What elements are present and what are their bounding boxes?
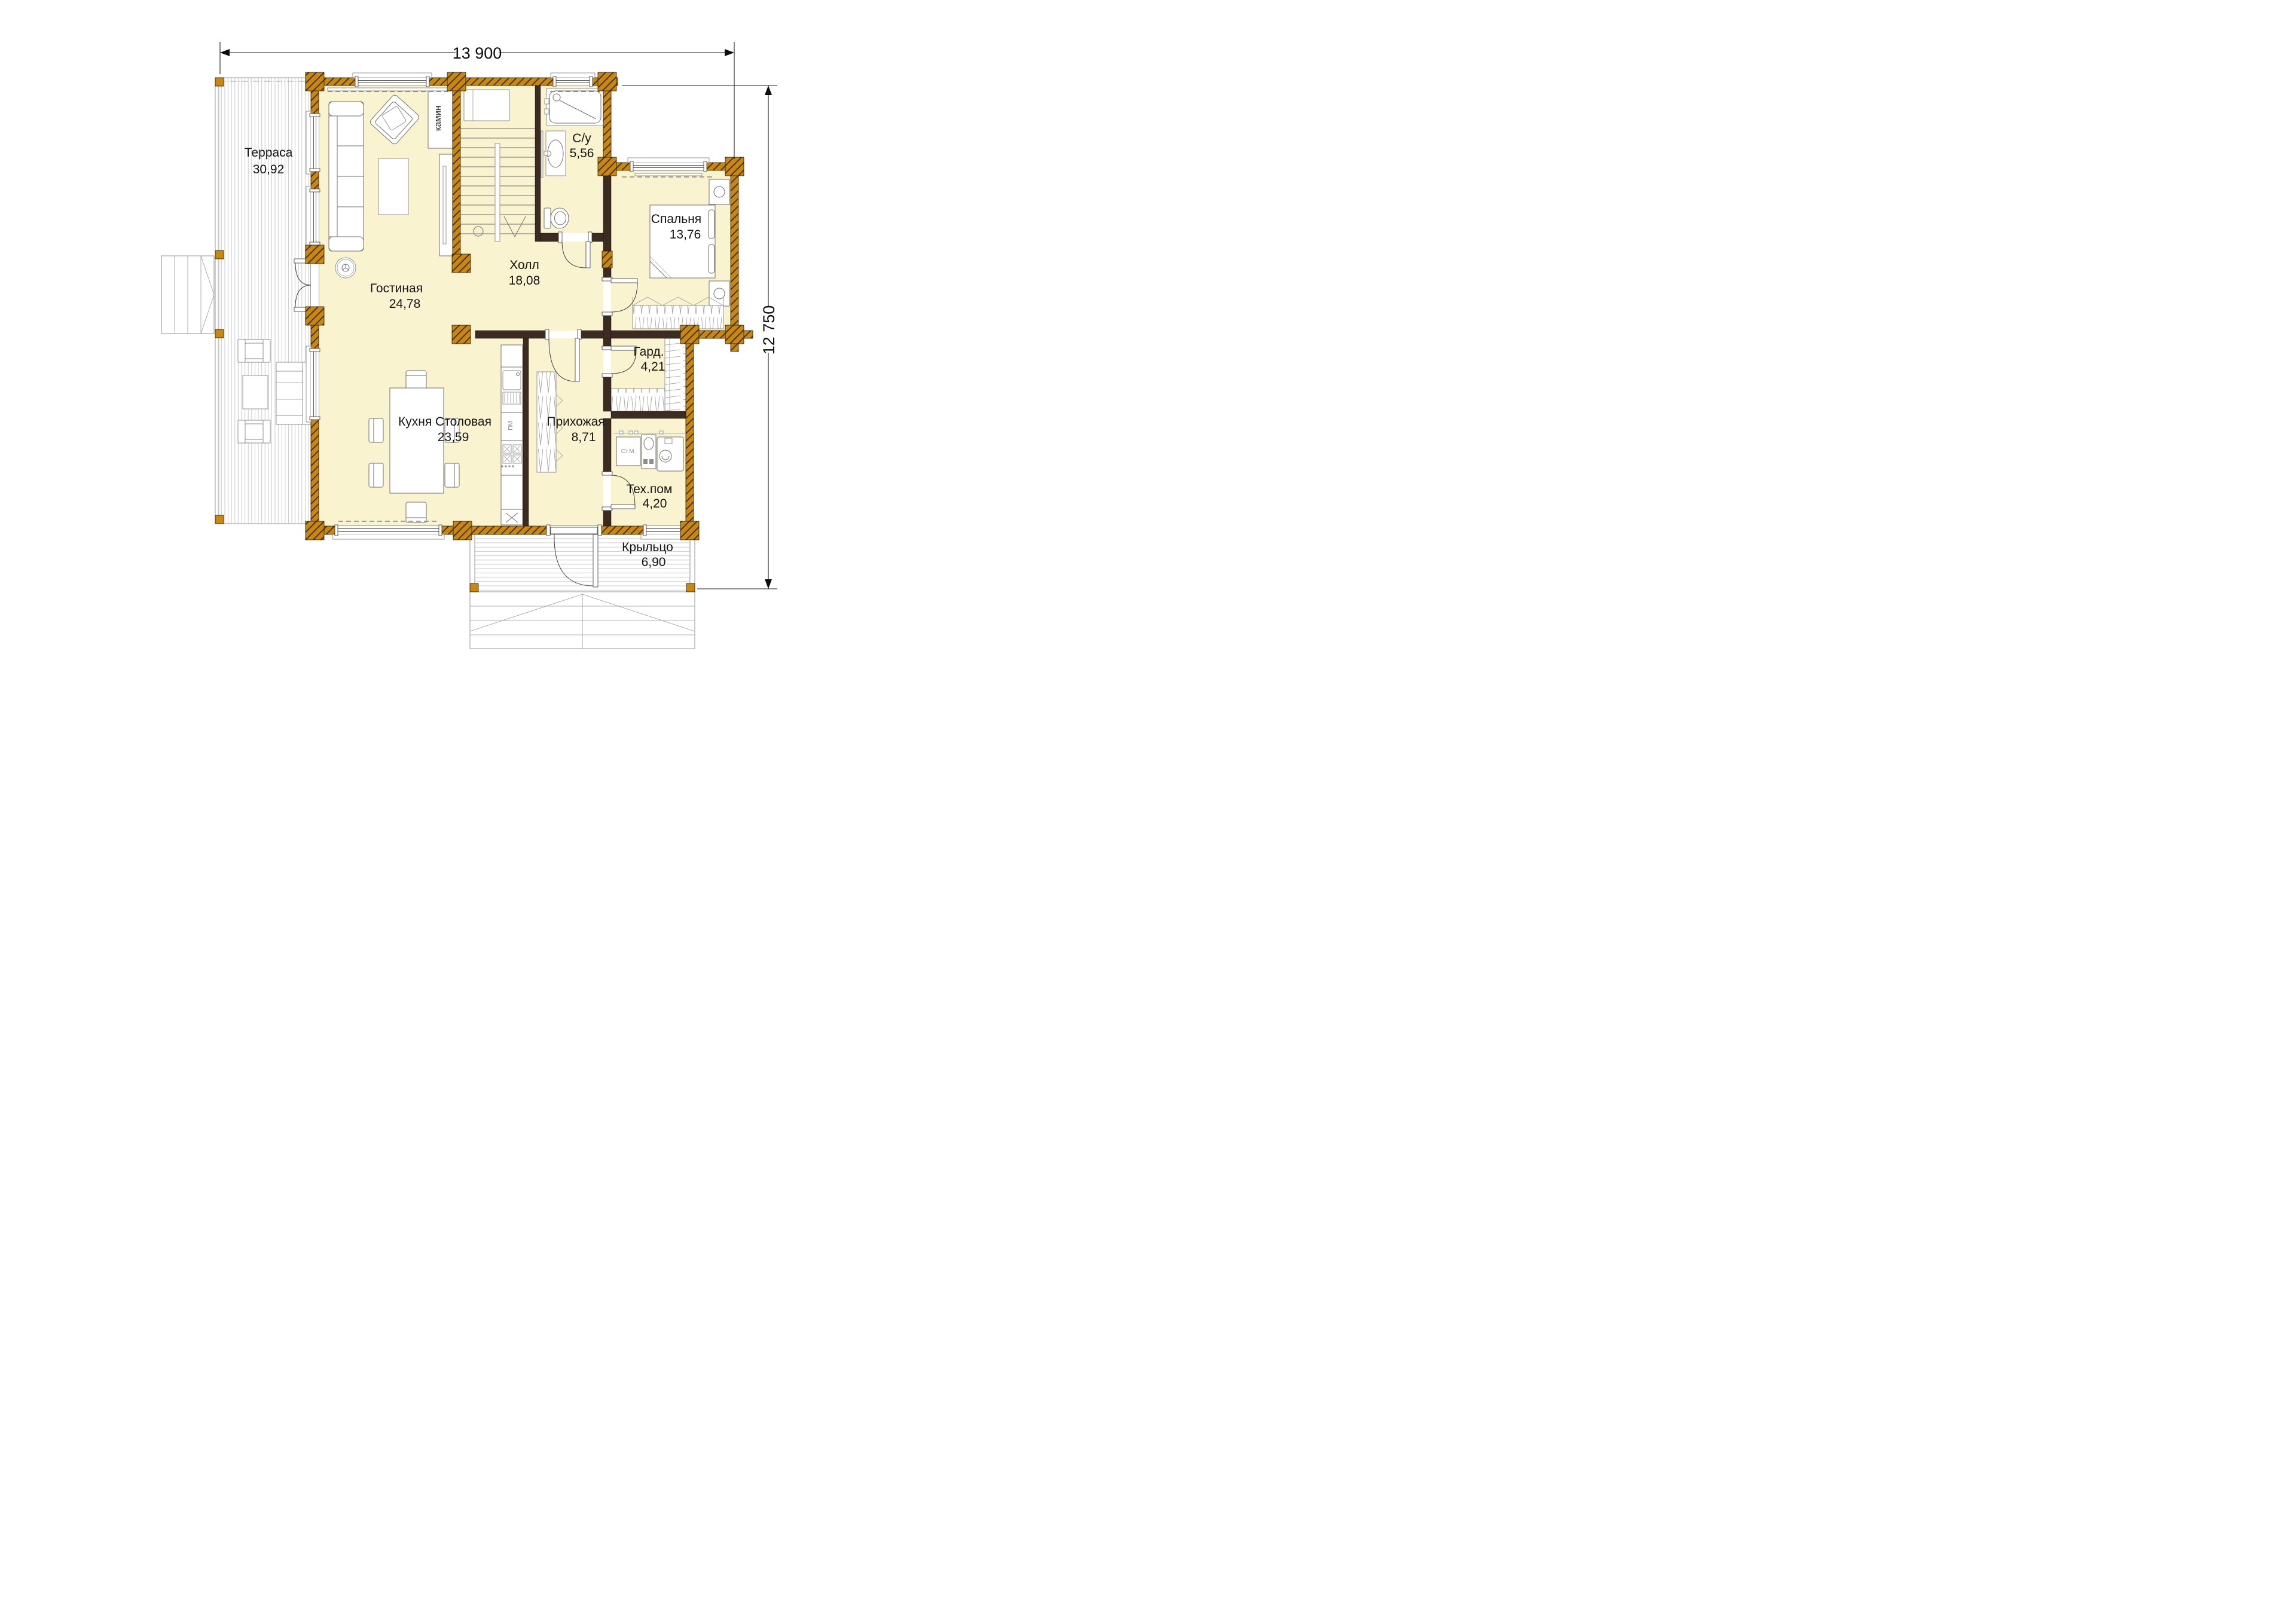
floor-plan-page: Терраса 30,92 Гостиная 24,78 Холл 18,08 … xyxy=(0,0,938,662)
window-icon xyxy=(332,525,444,539)
room-label-bedroom: Спальня xyxy=(651,212,701,226)
shower-icon xyxy=(545,88,604,126)
kitchen-sink-icon xyxy=(503,371,521,404)
room-area-porch: 6,90 xyxy=(642,555,666,569)
tv-cabinet-icon xyxy=(439,154,453,256)
room-label-kitchen: Кухня Столовая xyxy=(398,415,491,429)
room-label-bathroom: С/у xyxy=(572,132,591,145)
room-area-bathroom: 5,56 xyxy=(570,146,594,160)
water-heater-icon xyxy=(642,435,656,469)
boiler-icon xyxy=(657,437,683,471)
washing-machine-label: Ст.М. xyxy=(621,448,636,455)
room-area-living: 24,78 xyxy=(389,297,421,311)
kitchen-counter-icon xyxy=(501,345,523,525)
room-label-tech: Тех.пом xyxy=(627,482,673,496)
room-area-terrace: 30,92 xyxy=(253,163,285,176)
coffee-table-icon xyxy=(378,158,408,215)
nightstand-icon xyxy=(709,179,729,204)
nightstand-icon xyxy=(709,281,729,306)
toilet-icon xyxy=(544,208,569,228)
window-icon xyxy=(641,525,686,539)
window-icon xyxy=(306,346,320,422)
room-label-living: Гостиная xyxy=(370,282,423,295)
room-area-hall: 18,08 xyxy=(509,274,541,288)
terrace-sofa-icon xyxy=(276,362,311,424)
room-area-kitchen: 23,59 xyxy=(438,430,469,444)
terrace-side-steps xyxy=(161,256,214,334)
floor-plan-drawing: Терраса 30,92 Гостиная 24,78 Холл 18,08 … xyxy=(0,0,938,662)
terrace-deck xyxy=(215,78,319,524)
fireplace-label: камин xyxy=(433,106,443,131)
terrace-armchair-icon xyxy=(238,340,270,362)
side-table-icon xyxy=(335,258,356,278)
room-area-wardrobe: 4,21 xyxy=(641,360,665,374)
dishwasher-label: ПМ xyxy=(508,421,514,430)
room-label-porch: Крыльцо xyxy=(622,540,673,554)
dimension-height-label: 12 750 xyxy=(760,305,778,355)
porch-steps xyxy=(470,592,695,649)
window-icon xyxy=(306,111,320,174)
window-icon xyxy=(306,187,320,247)
room-label-entry: Прихожая xyxy=(546,415,604,429)
room-label-wardrobe: Гард. xyxy=(633,345,664,359)
room-area-entry: 8,71 xyxy=(572,430,596,444)
room-label-hall: Холл xyxy=(509,258,539,272)
room-label-terrace: Терраса xyxy=(245,146,293,160)
room-area-bedroom: 13,76 xyxy=(670,228,701,242)
sofa-icon xyxy=(329,102,364,251)
terrace-table-icon xyxy=(243,375,268,409)
window-icon xyxy=(551,73,595,87)
room-area-tech: 4,20 xyxy=(643,497,667,511)
terrace-armchair-icon xyxy=(238,420,270,443)
dimension-width-label: 13 900 xyxy=(453,44,502,62)
